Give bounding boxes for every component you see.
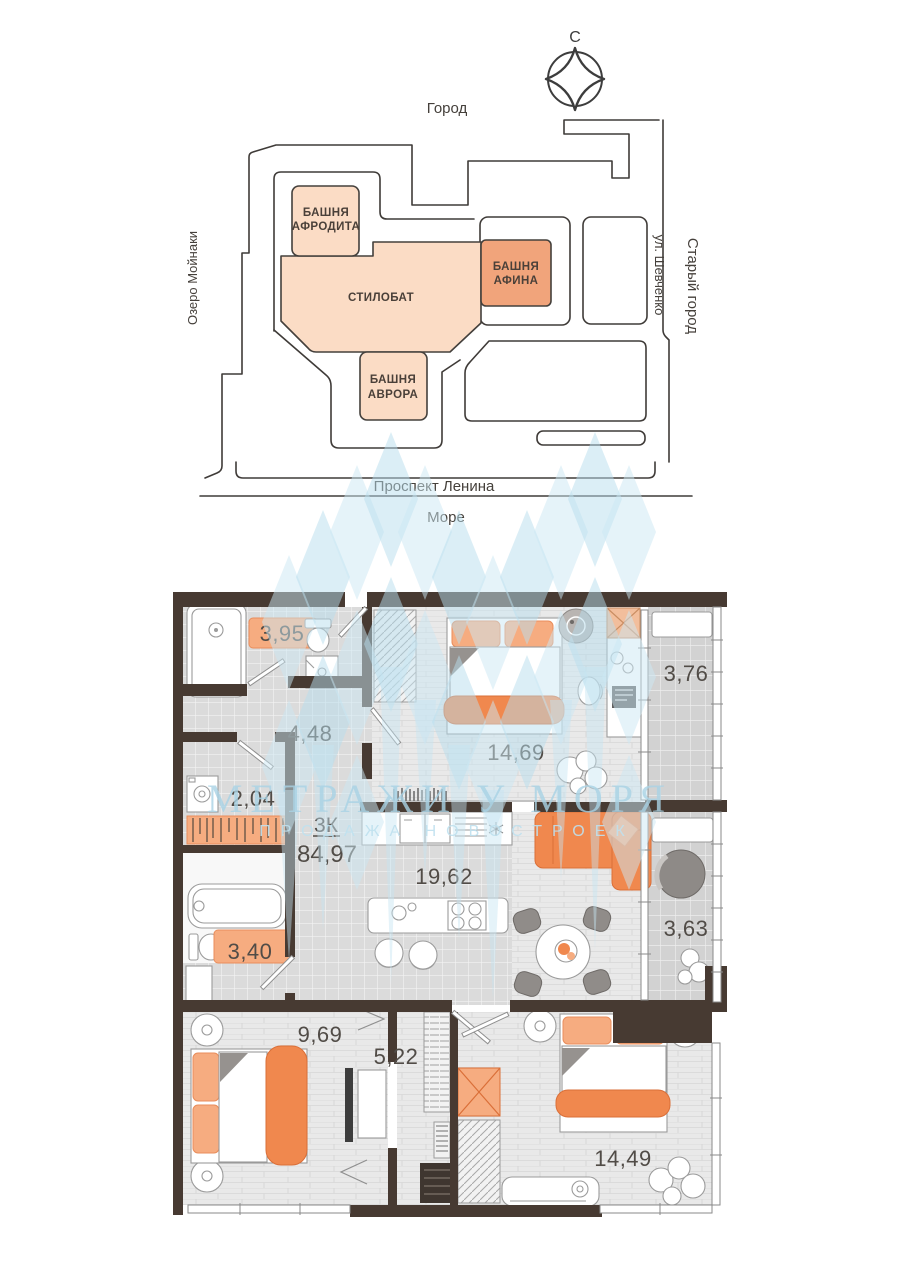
watermark-subtitle: ПРОДАЖА НОВОСТРОЕК [259,823,634,840]
label-stylobate: СТИЛОБАТ [348,292,414,304]
bathtub-icon [187,604,246,697]
papasan-chair-icon [657,850,705,898]
label-aurora: БАШНЯ [370,374,416,386]
site-plan: С БАШНЯ АФРОДИТА СТИЛОБАТ БАШНЯ АФИНА [185,29,701,526]
building-athena [481,240,551,306]
label-aurora-2: АВРОРА [368,389,418,401]
window [600,1205,712,1213]
room-label-bedroom-right: 14,49 [594,1146,652,1171]
building-aurora [360,352,427,420]
shoe-rack-icon [434,1122,450,1158]
balcony-top-fixtures [652,612,712,637]
cross-cabinet-icon [458,1068,500,1116]
compass-north-icon: С [546,29,604,110]
room-label-bedroom-left: 9,69 [298,1022,343,1047]
label-athena: БАШНЯ [493,261,539,273]
label-city: Город [427,100,468,117]
nightstand [191,1014,223,1046]
label-athena-2: АФИНА [494,275,539,287]
nightstand [524,1010,556,1042]
window [188,1205,350,1213]
balcony-glazing [713,812,721,1002]
balcony-cabinet [652,612,712,637]
wardrobe-icon [424,1012,450,1112]
label-old-town: Старый город [684,238,701,334]
label-shevchenko: ул. Шевченко [652,235,667,316]
label-aphrodite-2: АФРОДИТА [292,221,360,233]
wardrobe-icon [458,1120,500,1203]
label-lake: Озеро Мойнаки [185,231,200,325]
floorplan-page: С БАШНЯ АФРОДИТА СТИЛОБАТ БАШНЯ АФИНА [0,0,905,1280]
balcony-cabinet [652,818,713,842]
tv-console-icon [345,1068,386,1142]
shower-tray [186,966,212,1002]
label-aphrodite: БАШНЯ [303,207,349,219]
window [712,1043,720,1205]
room-label-balcony-top: 3,76 [664,661,709,686]
nightstand [191,1160,223,1192]
bed-icon [191,1046,307,1165]
north-label: С [569,29,581,46]
vanity-desk-icon [502,1177,599,1206]
plan-image: С БАШНЯ АФРОДИТА СТИЛОБАТ БАШНЯ АФИНА [0,0,905,1280]
room-label-bathroom-bottom: 3,40 [228,939,273,964]
room-label-kitchen: 19,62 [415,864,473,889]
room-label-corridor: 5,22 [374,1044,419,1069]
room-label-balcony-bottom: 3,63 [664,916,709,941]
watermark-title: МЕТРАЖИ У МОРЯ [207,776,673,821]
